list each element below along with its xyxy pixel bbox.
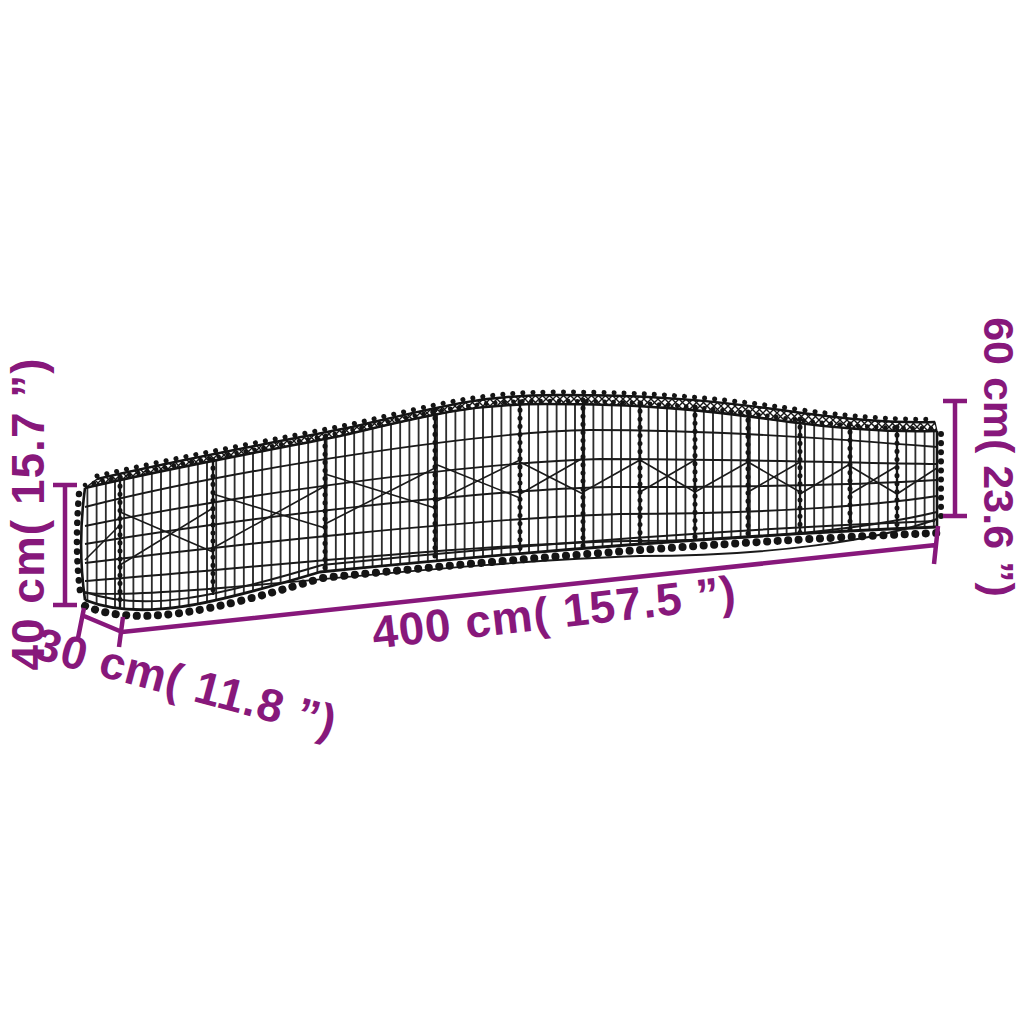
product-dimension-image: 40 cm( 15.7 ”) 60 cm( 23.6 ”) 30 cm( 11.… <box>0 0 1024 1024</box>
height-right-dimension-line <box>943 401 967 516</box>
height-right-dimension-label: 60 cm( 23.6 ”) <box>975 317 1023 597</box>
height-right-dimension: 60 cm( 23.6 ”) <box>943 317 1023 597</box>
left-edge <box>81 488 85 600</box>
depth-dimension-label: 30 cm( 11.8 ”) <box>29 617 342 748</box>
length-dimension-label: 400 cm( 157.5 ”) <box>369 566 739 659</box>
height-left-dimension-line <box>53 485 77 605</box>
depth-dimension: 30 cm( 11.8 ”) <box>29 608 342 748</box>
gabion-basket <box>77 392 941 616</box>
gabion-dimension-diagram: 40 cm( 15.7 ”) 60 cm( 23.6 ”) 30 cm( 11.… <box>0 0 1024 1024</box>
